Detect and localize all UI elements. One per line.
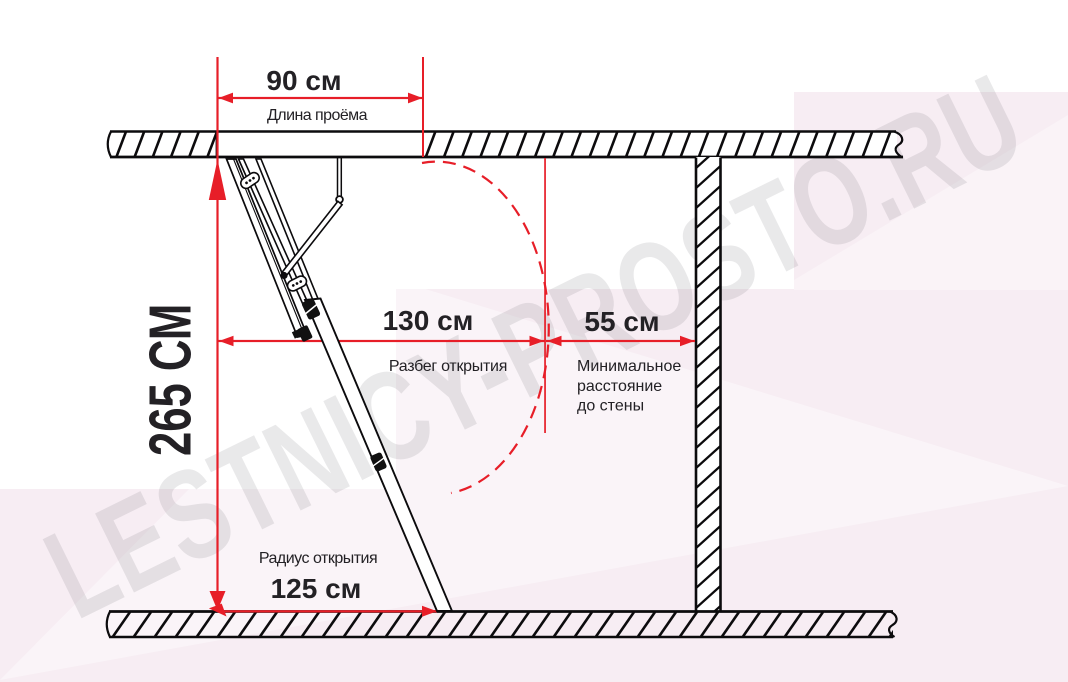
svg-text:Разбег открытия: Разбег открытия xyxy=(389,358,507,375)
svg-text:55 см: 55 см xyxy=(584,306,659,337)
svg-text:265 СМ: 265 СМ xyxy=(137,304,203,456)
svg-text:Длина проёма: Длина проёма xyxy=(267,107,368,124)
svg-text:до стены: до стены xyxy=(577,398,644,415)
svg-text:125 см: 125 см xyxy=(271,573,362,604)
svg-text:расстояние: расстояние xyxy=(577,378,662,395)
svg-text:130 см: 130 см xyxy=(383,305,474,336)
svg-text:Радиус открытия: Радиус открытия xyxy=(259,550,377,567)
svg-text:Минимальное: Минимальное xyxy=(577,358,681,375)
svg-text:90 см: 90 см xyxy=(266,65,341,96)
